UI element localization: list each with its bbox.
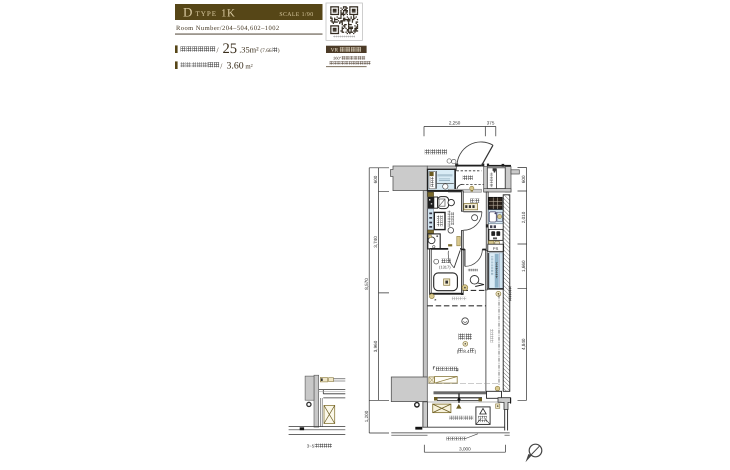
svg-text:SCALE 1/90: SCALE 1/90 [279,12,313,18]
svg-text:2,010: 2,010 [521,211,526,223]
svg-text:(1317): (1317) [439,264,451,269]
svg-text:25: 25 [223,41,238,57]
svg-text:1K: 1K [221,7,235,19]
svg-text:TYPE: TYPE [196,10,218,18]
svg-text:600: 600 [521,175,526,183]
svg-text:360°: 360° [333,55,341,60]
svg-text:m²: m² [245,63,252,70]
svg-text:PS: PS [493,246,499,251]
svg-text:8,570: 8,570 [364,278,369,290]
svg-text:3,960: 3,960 [373,340,378,352]
svg-text:3.60: 3.60 [227,61,244,72]
svg-text:8.4: 8.4 [463,349,470,354]
svg-text:600: 600 [373,175,378,183]
svg-text:VR: VR [331,48,339,54]
svg-text:2,250: 2,250 [449,120,461,125]
svg-text:(7.66: (7.66 [260,48,272,54]
svg-text:): ) [278,48,280,54]
svg-text:3,740: 3,740 [373,236,378,248]
svg-text:4,840: 4,840 [521,338,526,350]
svg-text:3,000: 3,000 [459,447,471,452]
svg-text:D: D [183,5,192,20]
svg-text:375: 375 [487,120,495,125]
svg-text:.35m²: .35m² [239,46,259,55]
svg-text:1,200: 1,200 [364,410,369,422]
svg-text:1,660: 1,660 [521,260,526,272]
svg-text:3~5: 3~5 [307,444,315,449]
svg-text:Room Number/204–504,602–1002: Room Number/204–504,602–1002 [176,25,280,32]
